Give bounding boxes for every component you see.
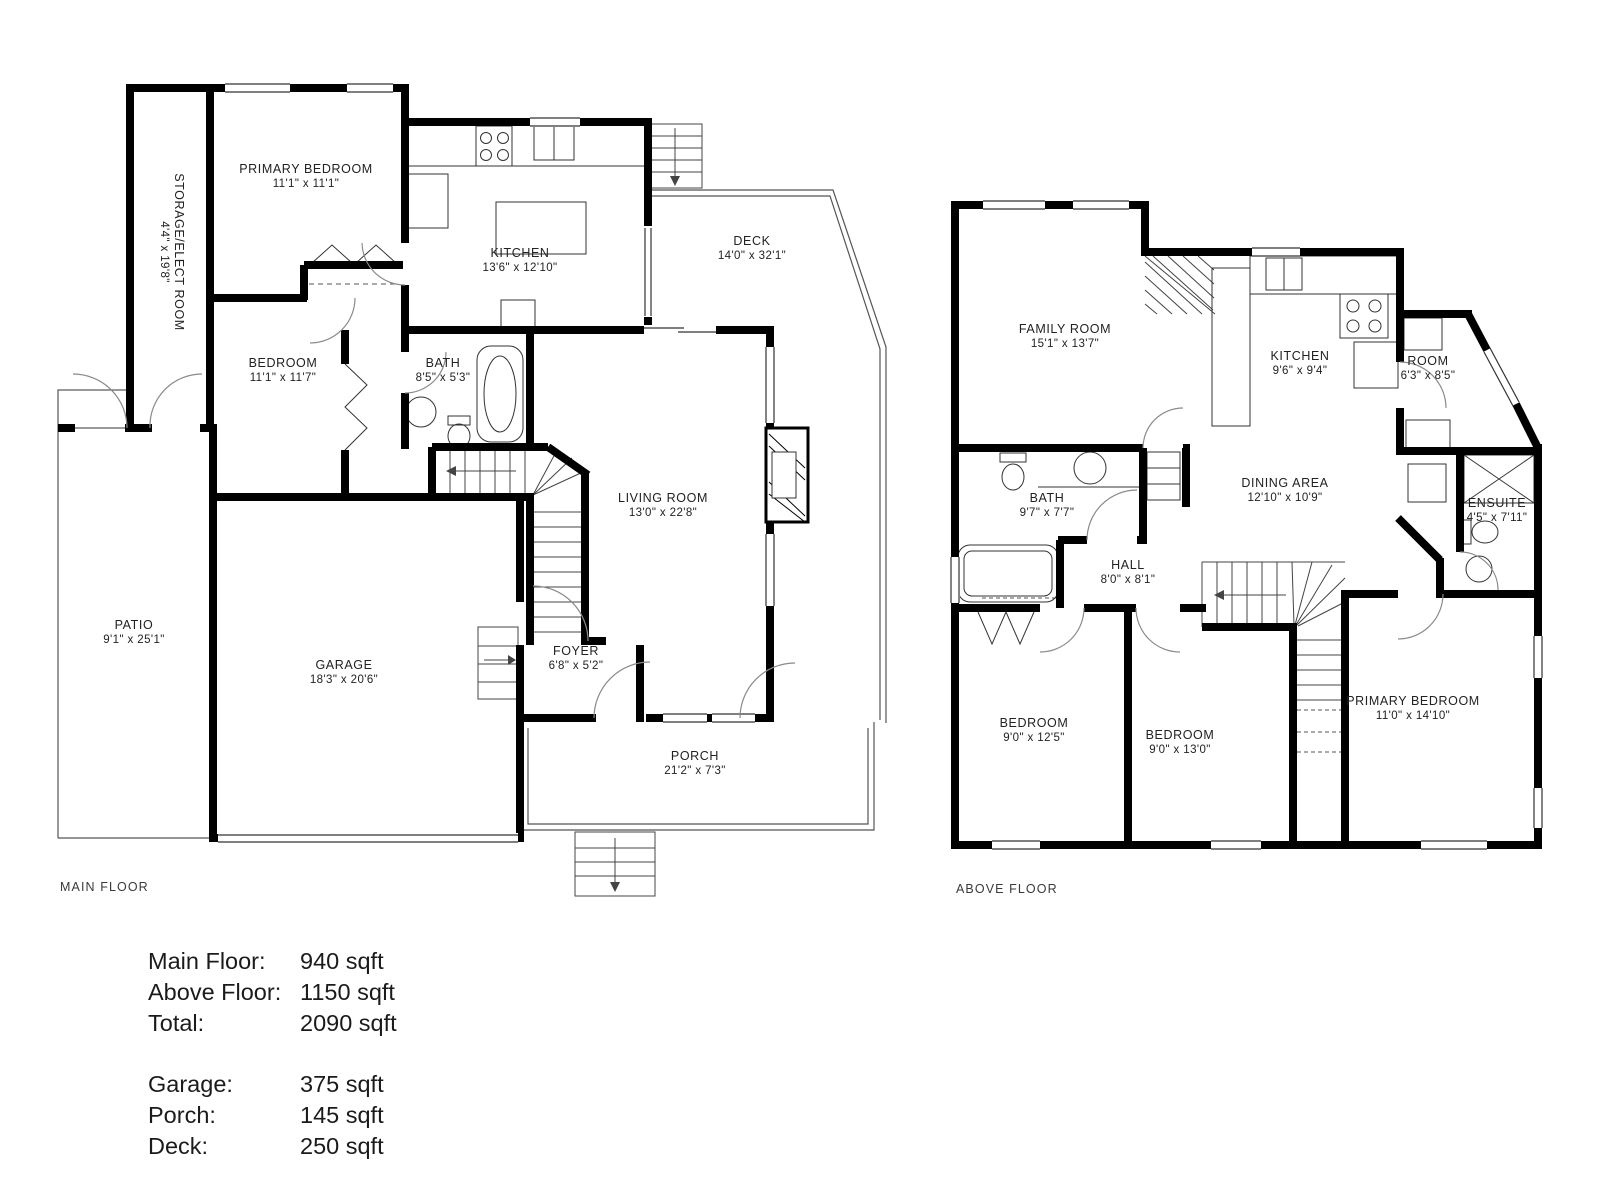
room-label-main-bath: BATH 8'5" x 5'3" bbox=[416, 356, 471, 384]
room-label-ensuite: ENSUITE 4'5" x 7'11" bbox=[1467, 496, 1528, 524]
above-floor-plan bbox=[950, 200, 1543, 850]
room-label-hall: HALL 8'0" x 8'1" bbox=[1101, 558, 1156, 586]
room-label-living-room: LIVING ROOM 13'0" x 22'8" bbox=[618, 491, 708, 519]
summary-row-garage: Garage: 375 sqft bbox=[148, 1069, 397, 1100]
room-label-deck: DECK 14'0" x 32'1" bbox=[718, 234, 786, 262]
summary-row-total: Total: 2090 sqft bbox=[148, 1008, 397, 1039]
sqft-summary: Main Floor: 940 sqft Above Floor: 1150 s… bbox=[148, 946, 397, 1162]
main-floor-title: MAIN FLOOR bbox=[60, 880, 149, 894]
room-label-above-primary-bedroom: PRIMARY BEDROOM 11'0" x 14'10" bbox=[1346, 694, 1480, 722]
room-label-above-kitchen: KITCHEN 9'6" x 9'4" bbox=[1270, 349, 1329, 377]
room-label-dining-area: DINING AREA 12'10" x 10'9" bbox=[1241, 476, 1328, 504]
room-label-foyer: FOYER 6'8" x 5'2" bbox=[549, 644, 604, 672]
room-label-above-bedroom-1: BEDROOM 9'0" x 12'5" bbox=[1000, 716, 1069, 744]
room-label-family-room: FAMILY ROOM 15'1" x 13'7" bbox=[1019, 322, 1111, 350]
room-label-porch: PORCH 21'2" x 7'3" bbox=[664, 749, 725, 777]
summary-spacer bbox=[148, 1039, 397, 1069]
summary-row-main-floor: Main Floor: 940 sqft bbox=[148, 946, 397, 977]
room-label-patio: PATIO 9'1" x 25'1" bbox=[103, 618, 164, 646]
summary-row-deck: Deck: 250 sqft bbox=[148, 1131, 397, 1162]
room-label-main-primary-bedroom: PRIMARY BEDROOM 11'1" x 11'1" bbox=[239, 162, 373, 190]
room-label-main-bedroom: BEDROOM 11'1" x 11'7" bbox=[249, 356, 318, 384]
room-label-above-bedroom-2: BEDROOM 9'0" x 13'0" bbox=[1146, 728, 1215, 756]
summary-row-porch: Porch: 145 sqft bbox=[148, 1100, 397, 1131]
room-label-room: ROOM 6'3" x 8'5" bbox=[1401, 354, 1456, 382]
floor-plan-page: STORAGE/ELECT ROOM 4'4" x 19'8" PRIMARY … bbox=[0, 0, 1600, 1200]
room-label-above-bath: BATH 9'7" x 7'7" bbox=[1020, 491, 1075, 519]
above-floor-title: ABOVE FLOOR bbox=[956, 882, 1058, 896]
room-label-main-kitchen: KITCHEN 13'6" x 12'10" bbox=[482, 246, 557, 274]
summary-row-above-floor: Above Floor: 1150 sqft bbox=[148, 977, 397, 1008]
room-label-storage-elect: STORAGE/ELECT ROOM 4'4" x 19'8" bbox=[158, 173, 186, 331]
room-label-garage: GARAGE 18'3" x 20'6" bbox=[310, 658, 378, 686]
